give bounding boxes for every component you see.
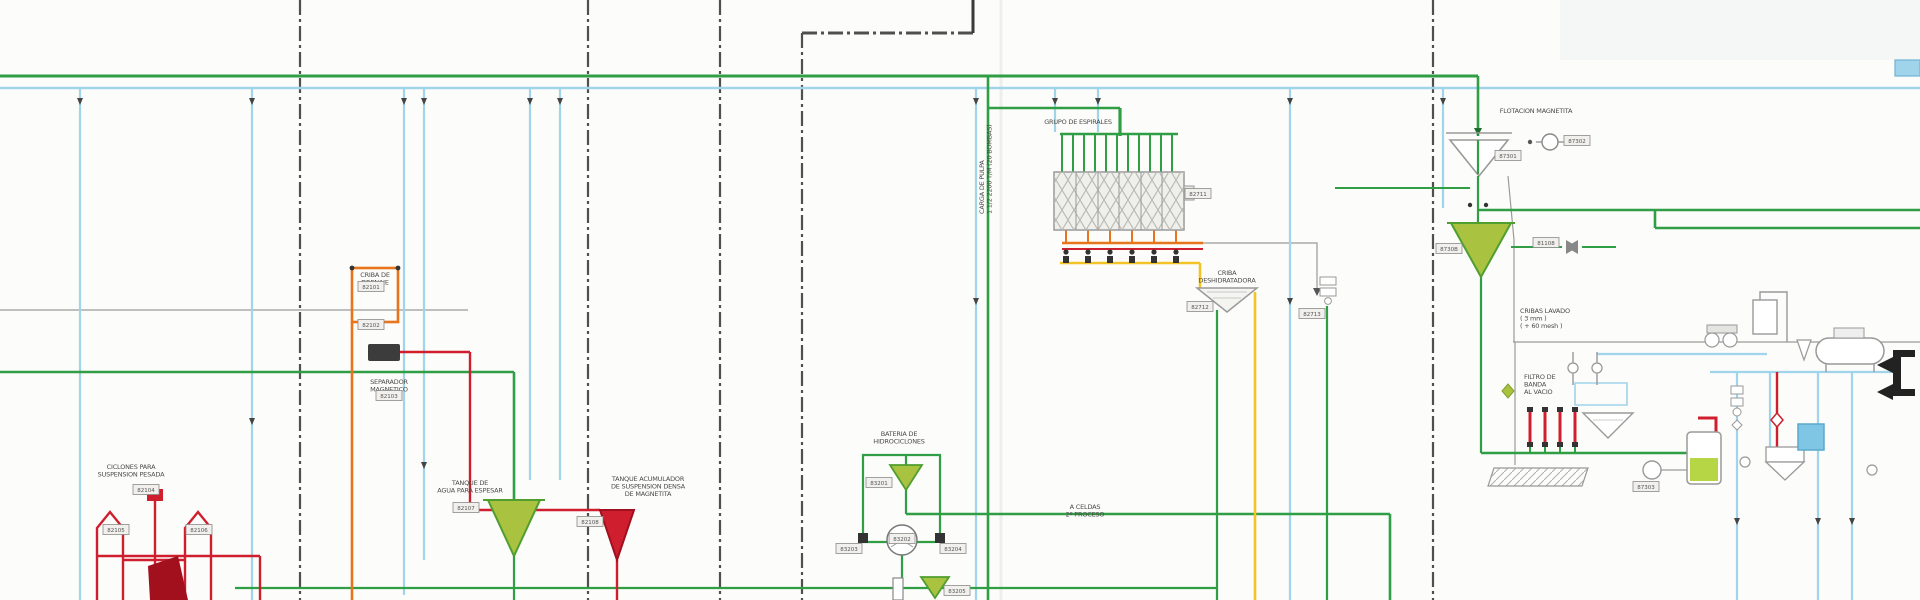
tag-number: 87301 xyxy=(1499,154,1517,160)
tag-box: 82106 xyxy=(186,525,212,535)
tag-number: 82712 xyxy=(1191,305,1209,311)
tag-number: 82713 xyxy=(1303,312,1321,318)
spray-nozzle xyxy=(1568,363,1578,373)
spray-nozzle xyxy=(1592,363,1602,373)
tag-box: 82103 xyxy=(376,391,402,401)
instrument-circle xyxy=(1867,465,1877,475)
tag-box: 82104 xyxy=(133,485,159,495)
corner-water-connector xyxy=(1895,60,1920,76)
ciclones-label: CICLONES PARASUSPENSION PESADA xyxy=(98,463,165,479)
tag-number: 82711 xyxy=(1189,192,1207,198)
instrument-circle xyxy=(1740,457,1750,467)
tag-box: 82105 xyxy=(103,525,129,535)
tag-box: 82711 xyxy=(1185,189,1211,199)
magnetic-separator-drum xyxy=(368,344,400,361)
tank-top-box xyxy=(1834,328,1864,338)
tag-box: 8730B xyxy=(1436,244,1462,254)
tag-box: 82107 xyxy=(453,503,479,513)
tag-box: 82101 xyxy=(358,282,384,292)
tag-box: 83202 xyxy=(889,534,915,544)
paper-shading xyxy=(1560,0,1920,60)
tag-number: 83202 xyxy=(893,537,911,543)
tag-number: 82106 xyxy=(190,528,208,534)
grupo-espirales-label: GRUPO DE ESPIRALES xyxy=(1044,118,1112,126)
pipe-tee xyxy=(858,533,868,543)
paper-background xyxy=(0,0,1920,600)
bateria-label: BATERIA DEHIDROCICLONES xyxy=(873,430,925,446)
tag-box: 82102 xyxy=(358,320,384,330)
flowsheet-canvas: CICLONES PARASUSPENSION PESADASEPARADORM… xyxy=(0,0,1920,600)
pipe-joint xyxy=(396,266,401,271)
conveyor xyxy=(1488,468,1588,486)
standpipe xyxy=(893,578,903,600)
tag-box: 83203 xyxy=(836,544,862,554)
tag-number: 8730B xyxy=(1440,247,1458,253)
tag-number: 87303 xyxy=(1637,485,1655,491)
tag-box: 82712 xyxy=(1187,302,1213,312)
pump-motor xyxy=(1707,325,1737,333)
tag-number: 81108 xyxy=(1537,241,1555,247)
tag-box: 87301 xyxy=(1495,151,1521,161)
tag-number: 82101 xyxy=(362,285,380,291)
tag-box: 83201 xyxy=(866,478,892,488)
small-vessel xyxy=(1753,300,1777,334)
tag-number: 83201 xyxy=(870,481,888,487)
flowsheet-svg: CICLONES PARASUSPENSION PESADASEPARADORM… xyxy=(0,0,1920,600)
flotacion-label: FLOTACION MAGNETITA xyxy=(1500,107,1573,115)
tag-number: 83204 xyxy=(944,547,962,553)
tag-box: 82108 xyxy=(577,517,603,527)
tag-box: 82713 xyxy=(1299,309,1325,319)
pump-circle xyxy=(1643,461,1661,479)
tag-box: 81108 xyxy=(1533,238,1559,248)
tag-number: 83203 xyxy=(840,547,858,553)
a-celdas-label: A CELDAS2º PROCESO xyxy=(1066,503,1105,519)
flotation-pump xyxy=(1542,134,1558,150)
filtrate-tank-level xyxy=(1690,458,1718,481)
pump-circle xyxy=(1723,333,1737,347)
tag-box: 83204 xyxy=(940,544,966,554)
horizontal-tank xyxy=(1816,338,1884,364)
pump-circle xyxy=(1705,333,1719,347)
tag-number: 82108 xyxy=(581,520,599,526)
tag-number: 87302 xyxy=(1568,139,1586,145)
tag-number: 83205 xyxy=(948,589,966,595)
tag-number: 82104 xyxy=(137,488,155,494)
tag-number: 82102 xyxy=(362,323,380,329)
pipe-joint xyxy=(350,266,355,271)
tag-box: 83205 xyxy=(944,586,970,596)
tag-number: 82103 xyxy=(380,394,398,400)
magnetic-separator-group xyxy=(368,344,400,361)
tag-number: 82105 xyxy=(107,528,125,534)
tag-box: 87303 xyxy=(1633,482,1659,492)
tag-box: 87302 xyxy=(1564,136,1590,146)
water-box xyxy=(1798,424,1824,450)
tag-number: 82107 xyxy=(457,506,475,512)
pipe-tee xyxy=(935,533,945,543)
